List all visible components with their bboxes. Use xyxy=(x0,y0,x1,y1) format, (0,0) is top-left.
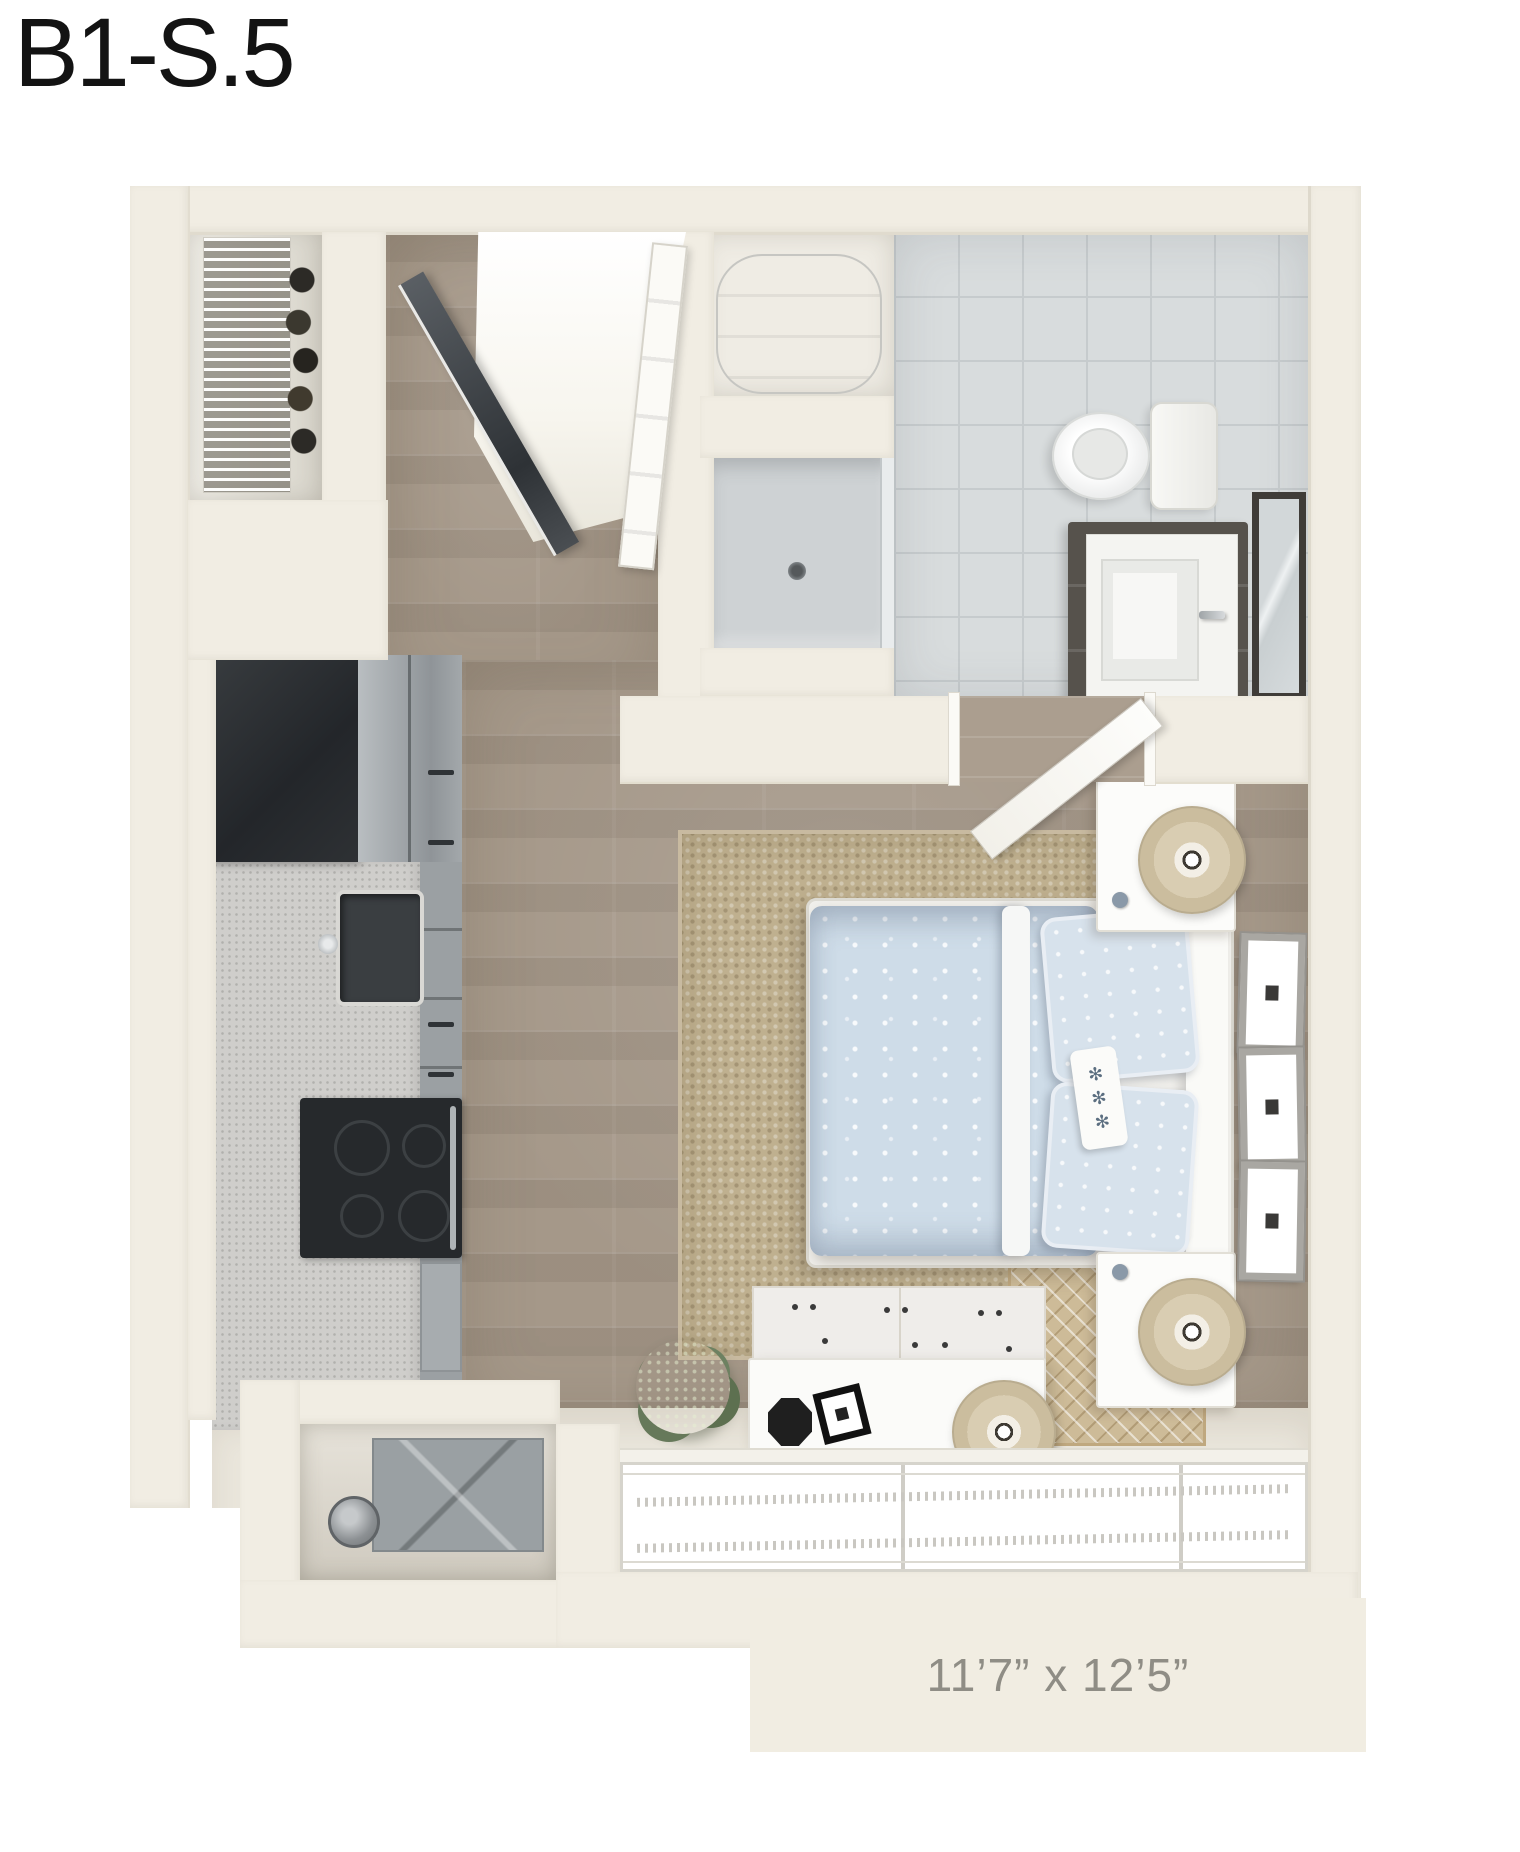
wall-east xyxy=(1308,186,1361,1648)
wall-frame xyxy=(1238,933,1305,1053)
oven-handle xyxy=(450,1106,456,1250)
shower xyxy=(700,458,894,648)
mech-closet-wall xyxy=(556,1424,620,1580)
toilet-tank xyxy=(1150,402,1218,510)
coat-closet xyxy=(187,227,322,503)
range-cooktop xyxy=(300,1098,462,1258)
drawer-handles xyxy=(792,1304,798,1310)
headboard xyxy=(1186,898,1228,1262)
flue-pipe xyxy=(328,1496,380,1548)
bathroom-wall xyxy=(1148,696,1308,784)
dishwasher-panel xyxy=(420,1262,462,1372)
wire-shelf xyxy=(203,237,291,493)
window-mullion xyxy=(1179,1465,1183,1569)
hvac-unit xyxy=(372,1438,544,1552)
wall-west-inner xyxy=(188,655,216,1420)
burner xyxy=(402,1124,446,1168)
bath-mirror xyxy=(1252,492,1306,700)
closet-partition xyxy=(322,232,386,522)
vanity-faucet xyxy=(1199,611,1225,619)
starfish-icon: ✻ xyxy=(1090,1088,1107,1108)
windows xyxy=(620,1462,1308,1572)
dimension-strip: 11’7” x 12’5” xyxy=(750,1598,1366,1752)
wall-frame xyxy=(1239,1161,1305,1280)
refrigerator-top xyxy=(200,645,358,862)
water-heater xyxy=(716,254,882,394)
vanity-counter xyxy=(1086,534,1238,716)
pillow xyxy=(1039,906,1201,1084)
cabinet-handle xyxy=(428,1022,454,1027)
shower-glass xyxy=(880,458,894,648)
bathroom-wall xyxy=(620,696,956,784)
shower-partition xyxy=(700,648,894,696)
potted-plant xyxy=(636,1340,730,1434)
wall-west xyxy=(130,186,190,1508)
starfish-icon: ✻ xyxy=(1087,1064,1104,1084)
room-dimensions-label: 11’7” x 12’5” xyxy=(927,1648,1190,1702)
mirror-glass xyxy=(1259,499,1299,693)
door-jamb xyxy=(948,692,960,786)
kitchen-sink xyxy=(336,890,424,1006)
floor-plan-page: B1-S.5 xyxy=(0,0,1520,1852)
nightstand-decor xyxy=(1112,892,1128,908)
dresser-drawers xyxy=(752,1286,1046,1366)
folded-sheet xyxy=(1002,906,1030,1256)
burner xyxy=(334,1120,390,1176)
water-heater-closet xyxy=(700,232,894,396)
wall-frame xyxy=(1239,1047,1305,1166)
window-track xyxy=(637,1484,1291,1507)
window-mullion xyxy=(901,1465,905,1569)
page-title: B1-S.5 xyxy=(14,2,293,104)
shower-drain xyxy=(788,562,806,580)
niche-partition xyxy=(700,396,894,458)
mechanical-closet xyxy=(300,1424,556,1580)
nightstand-decor xyxy=(1112,1264,1128,1280)
kitchen-faucet xyxy=(318,934,338,954)
burner xyxy=(398,1190,450,1242)
hanging-clothes xyxy=(284,263,320,475)
cabinet-handle xyxy=(428,770,454,775)
cabinet-handle xyxy=(428,1072,454,1077)
cabinet-handle xyxy=(428,840,454,845)
wall-chunk xyxy=(188,500,388,660)
table-lamp-icon xyxy=(1138,1278,1246,1386)
window-frame-line xyxy=(623,1561,1305,1563)
starfish-icon: ✻ xyxy=(1094,1112,1111,1132)
wall-north xyxy=(130,186,1358,235)
burner xyxy=(340,1194,384,1238)
vanity-sink xyxy=(1101,559,1199,681)
plan-notch xyxy=(130,1508,240,1852)
refrigerator-front xyxy=(358,655,462,862)
toilet xyxy=(1052,412,1150,500)
window-frame-line xyxy=(623,1473,1305,1475)
table-lamp-icon xyxy=(1138,806,1246,914)
window-track xyxy=(637,1530,1291,1553)
